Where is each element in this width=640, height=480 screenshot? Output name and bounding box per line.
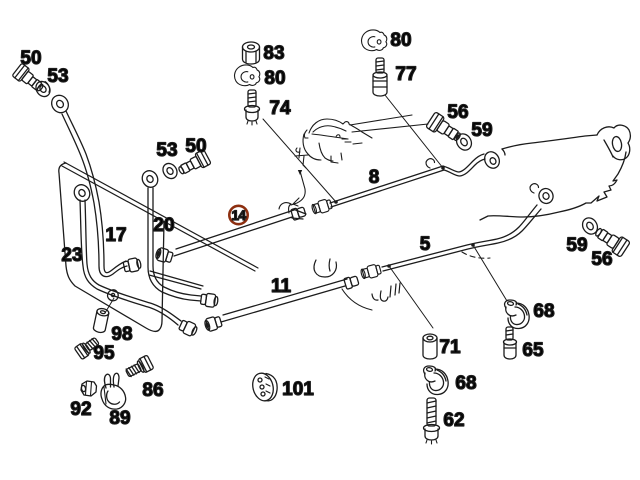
svg-text:14: 14 bbox=[231, 208, 246, 223]
svg-text:71: 71 bbox=[439, 337, 461, 358]
svg-text:77: 77 bbox=[395, 64, 416, 85]
svg-text:53: 53 bbox=[47, 66, 68, 87]
svg-text:50: 50 bbox=[185, 136, 206, 157]
svg-text:98: 98 bbox=[111, 324, 132, 345]
svg-text:65: 65 bbox=[522, 340, 544, 361]
svg-text:17: 17 bbox=[105, 225, 126, 246]
svg-text:86: 86 bbox=[142, 380, 163, 401]
svg-text:20: 20 bbox=[153, 215, 174, 236]
svg-text:92: 92 bbox=[70, 399, 91, 420]
svg-text:59: 59 bbox=[566, 235, 587, 256]
svg-text:74: 74 bbox=[269, 98, 291, 119]
svg-text:8: 8 bbox=[369, 167, 380, 188]
svg-text:62: 62 bbox=[443, 410, 464, 431]
svg-text:56: 56 bbox=[447, 102, 468, 123]
svg-text:83: 83 bbox=[263, 43, 284, 64]
svg-text:101: 101 bbox=[282, 379, 314, 400]
svg-text:11: 11 bbox=[271, 276, 292, 297]
svg-text:50: 50 bbox=[20, 48, 41, 69]
svg-text:68: 68 bbox=[455, 373, 476, 394]
svg-text:56: 56 bbox=[591, 249, 612, 270]
svg-text:89: 89 bbox=[109, 408, 130, 429]
svg-text:53: 53 bbox=[156, 140, 177, 161]
svg-text:59: 59 bbox=[471, 120, 492, 141]
svg-text:95: 95 bbox=[93, 343, 115, 364]
svg-text:68: 68 bbox=[533, 301, 554, 322]
svg-text:80: 80 bbox=[390, 30, 411, 51]
svg-text:5: 5 bbox=[420, 234, 431, 255]
svg-text:80: 80 bbox=[264, 68, 285, 89]
svg-text:23: 23 bbox=[61, 245, 82, 266]
